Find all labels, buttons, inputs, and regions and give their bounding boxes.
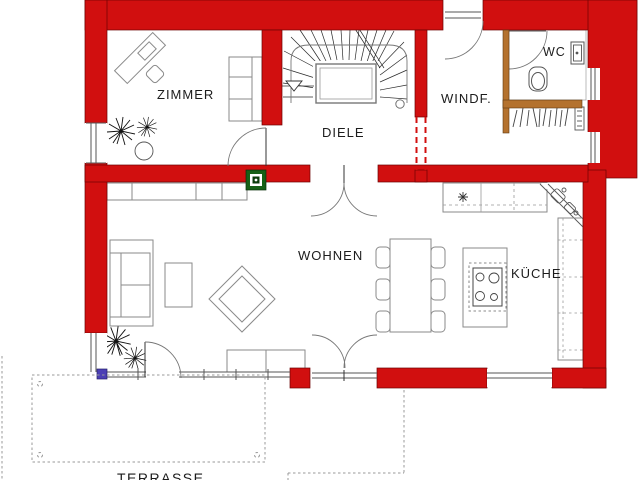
entrance-door	[445, 12, 483, 59]
wc-toilet	[529, 67, 547, 91]
wc-room	[509, 30, 586, 100]
wc-door-arc	[509, 31, 547, 69]
floor-plan: ZIMMER DIELE WINDF. WC WOHNEN KÜCHE TERR…	[0, 0, 640, 480]
windows	[85, 68, 600, 387]
zimmer-side-table	[135, 142, 153, 160]
room-label-diele: DIELE	[322, 125, 365, 140]
staircase	[282, 24, 407, 108]
path-outline	[288, 390, 404, 480]
kitchen-counter-top	[443, 183, 547, 212]
downpipe-marker	[97, 369, 107, 379]
room-label-wc: WC	[543, 45, 566, 59]
terrace-outline	[32, 375, 265, 462]
sideboard-top	[107, 183, 247, 200]
lounge-chair	[209, 266, 275, 332]
kitchen-island	[463, 248, 507, 327]
plant-icon	[107, 117, 157, 145]
wc-washbasin	[571, 42, 584, 64]
room-label-zimmer: ZIMMER	[157, 87, 214, 102]
room-label-windfang: WINDF.	[441, 91, 492, 106]
dining-table	[390, 239, 431, 332]
coffee-table	[165, 263, 192, 307]
room-label-terrasse: TERRASSE	[117, 470, 204, 480]
zimmer-bed	[229, 57, 262, 121]
room-label-wohnen: WOHNEN	[298, 248, 363, 263]
room-label-kueche: KÜCHE	[511, 266, 562, 281]
chimney-icon	[246, 170, 266, 190]
radiator	[575, 107, 584, 130]
coat-rack-icon	[513, 108, 568, 127]
cooktop	[473, 268, 502, 306]
floor-plan-canvas	[0, 0, 640, 480]
plant-icon	[101, 326, 146, 369]
zimmer-desk	[115, 33, 166, 84]
zimmer-door	[228, 128, 266, 166]
double-door-diele	[311, 165, 377, 216]
diele-opening-dashed	[417, 117, 426, 170]
kitchen-appliance-icon	[458, 192, 468, 202]
kitchen-counter-right	[558, 218, 583, 360]
terrace-single-door	[145, 342, 181, 378]
sofa	[110, 240, 153, 326]
french-door-terrace	[312, 335, 377, 381]
